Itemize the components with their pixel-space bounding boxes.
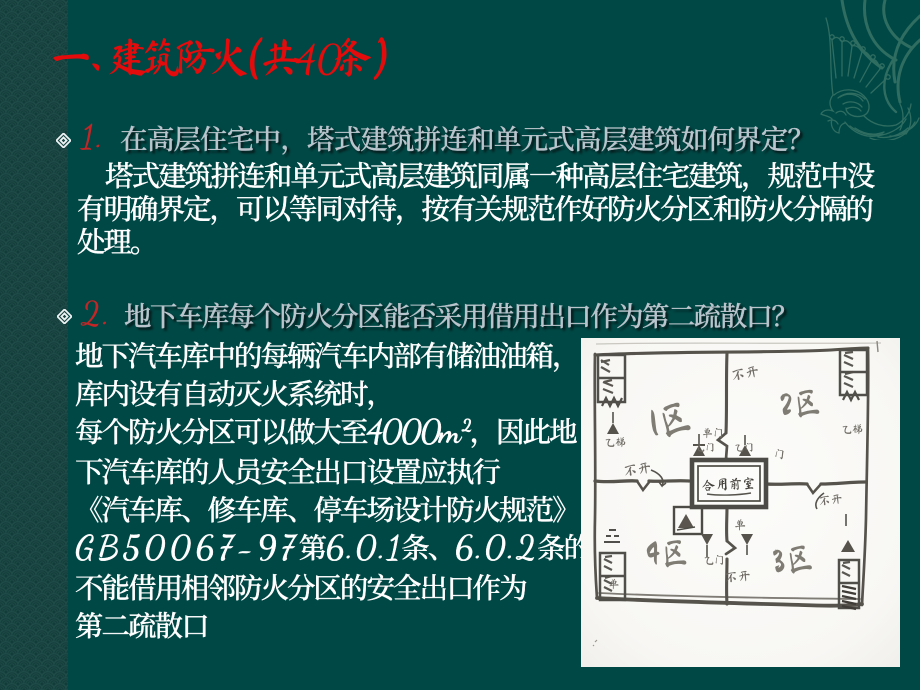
svg-text:2区: 2区 (778, 386, 824, 422)
svg-text:乙梯: 乙梯 (604, 437, 626, 448)
svg-text:合用前室: 合用前室 (701, 476, 756, 493)
svg-text:乙门: 乙门 (695, 443, 715, 453)
svg-text:单: 单 (734, 518, 746, 531)
svg-text:乙门: 乙门 (734, 443, 754, 453)
svg-text:4区: 4区 (645, 537, 692, 571)
svg-text:不开: 不开 (724, 569, 751, 585)
svg-text:乙梯: 乙梯 (841, 424, 863, 435)
svg-text:梯: 梯 (844, 569, 854, 580)
svg-text:单门: 单门 (702, 428, 724, 439)
svg-text:3区: 3区 (771, 541, 818, 578)
svg-text:单: 单 (609, 579, 620, 590)
svg-text:门: 门 (773, 448, 785, 460)
svg-text:乙门: 乙门 (703, 555, 725, 566)
